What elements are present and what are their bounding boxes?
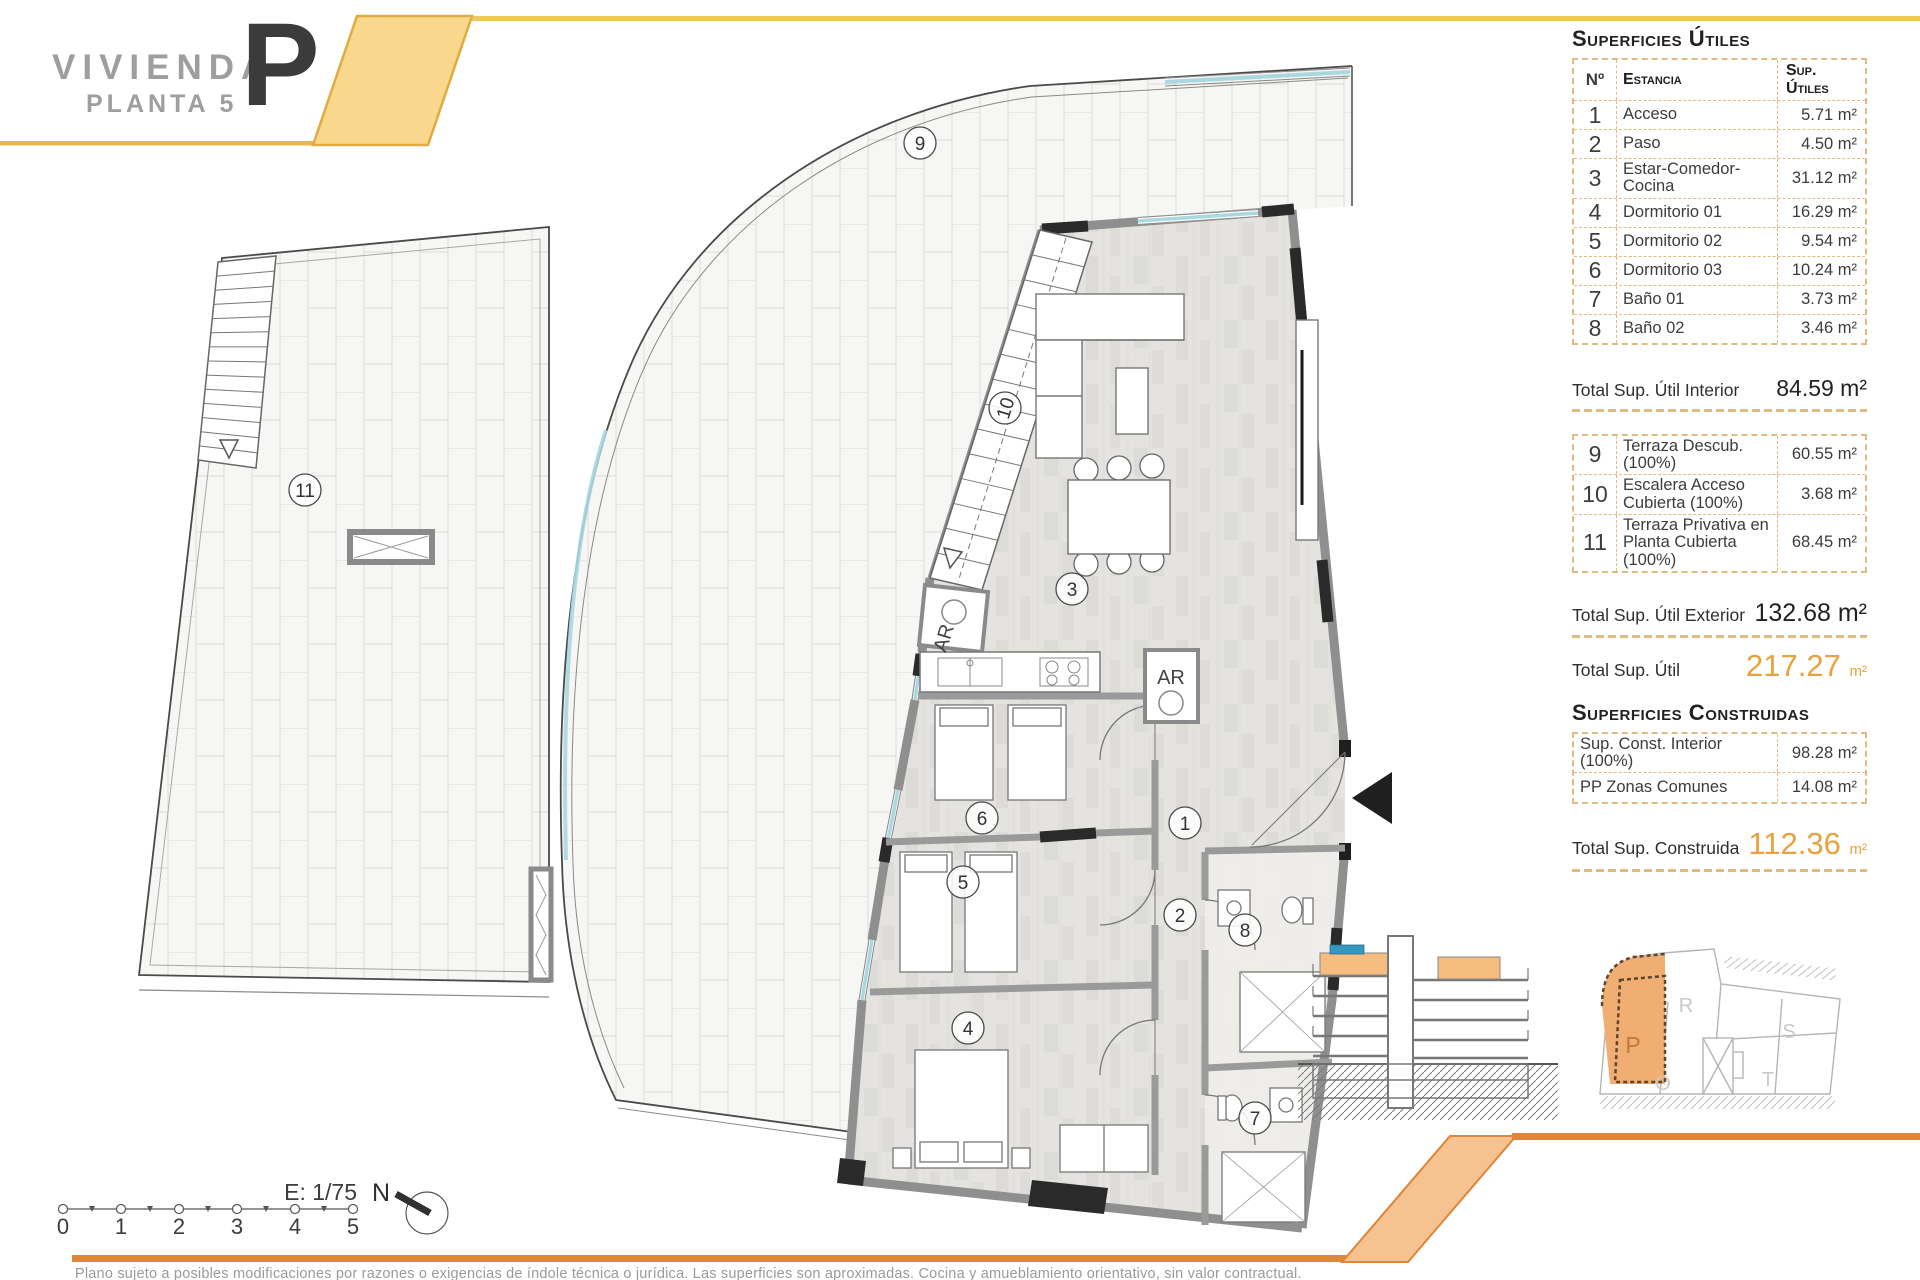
row-num: 7 [1574,286,1616,314]
bottom-parallelogram [1342,1136,1516,1262]
scale-tick-label: 3 [231,1214,243,1239]
bottom-accent-bar [72,1255,1354,1262]
row-room: Terraza Privativa en Planta Cubierta (10… [1616,515,1777,571]
room-marker: 1 [1169,807,1201,839]
room-marker: 8 [1229,914,1261,946]
title-block: VIVIENDA PLANTA 5 P [0,0,520,160]
exterior-table: 9Terraza Descub.(100%)60.55 m²10Escalera… [1572,434,1867,573]
row-room: Acceso [1616,101,1777,129]
row-num: 8 [1574,315,1616,343]
site-unit-label: S [1782,1021,1795,1043]
row-room: Dormitorio 03 [1616,257,1777,285]
row-area: 31.12 m² [1777,159,1865,198]
table-row: 4Dormitorio 0116.29 m² [1574,198,1865,227]
row-room: Dormitorio 01 [1616,199,1777,227]
site-unit-highlight [1602,954,1665,1084]
building-section-diagram [1298,936,1558,1120]
table-row: 9Terraza Descub.(100%)60.55 m² [1574,436,1865,475]
table-row: 6Dormitorio 0310.24 m² [1574,256,1865,285]
row-room: Dormitorio 02 [1616,228,1777,256]
site-ground-hatch [1600,1096,1835,1109]
room-marker: 2 [1164,899,1196,931]
row-room: Baño 01 [1616,286,1777,314]
row-area: 60.55 m² [1777,436,1865,475]
section-pool [1330,945,1364,954]
row-num: 2 [1574,130,1616,158]
svg-text:3: 3 [1067,580,1078,601]
scale-bar: 012345 E: 1/75 [57,1179,359,1239]
floorplan-page: PRSTO 012345 E: 1/75 N 1234567891011 ARA… [0,0,1920,1280]
total-construida-row: Total Sup. Construida 112.36 m² [1572,826,1867,862]
row-room: Sup. Const. Interior (100%) [1574,734,1777,773]
row-area: 5.71 m² [1777,101,1865,129]
total-util-row: Total Sup. Útil 217.27 m² [1572,648,1867,684]
total-construida-value: 112.36 m² [1748,826,1867,862]
row-num: 1 [1574,101,1616,129]
table-row: 8Baño 023.46 m² [1574,314,1865,343]
north-arrow-icon: N [372,1179,448,1234]
total-exterior-label: Total Sup. Útil Exterior [1572,605,1745,626]
dining-table-icon [1068,454,1170,576]
entrance-arrow-icon [1352,772,1392,824]
scale-tick-label: 1 [115,1214,127,1239]
svg-text:11: 11 [295,481,315,502]
row-area: 9.54 m² [1777,228,1865,256]
scale-tick-label: 5 [347,1214,359,1239]
utiles-table: Nº Estancia Sup. Útiles 1Acceso5.71 m²2P… [1572,58,1867,345]
room-marker: 3 [1056,573,1088,605]
row-room: Estar-Comedor-Cocina [1616,159,1777,198]
site-unit-label: P [1625,1032,1640,1058]
table-row: 3Estar-Comedor-Cocina31.12 m² [1574,158,1865,198]
row-area: 3.46 m² [1777,315,1865,343]
section-highlight-floor [1320,953,1392,975]
row-num: 11 [1574,515,1616,571]
scale-tick-label: 4 [289,1214,301,1239]
room-marker: 10 [989,392,1021,424]
table-row: 2Paso4.50 m² [1574,129,1865,158]
unit-letter: P [241,6,320,124]
row-room: Paso [1616,130,1777,158]
site-unit-label: R [1679,995,1693,1017]
row-area: 10.24 m² [1777,257,1865,285]
section-core [1388,936,1413,1108]
svg-text:9: 9 [915,134,926,155]
apartment-plan [561,66,1392,1228]
utiles-title: Superficies Útiles [1572,26,1867,52]
disclaimer-text: Plano sujeto a posibles modificaciones p… [75,1266,1575,1280]
total-interior-value: 84.59 m² [1776,375,1867,402]
divider [1572,635,1867,638]
areas-panel: Superficies Útiles Nº Estancia Sup. Útil… [1572,26,1867,872]
room-marker: 4 [952,1012,984,1044]
scale-tick-label: 0 [57,1214,69,1239]
total-exterior-value: 132.68 m² [1754,599,1867,628]
divider [1572,409,1867,412]
row-num: 10 [1574,475,1616,514]
table-row: PP Zonas Comunes14.08 m² [1574,772,1865,802]
row-num: 5 [1574,228,1616,256]
svg-text:2: 2 [1175,906,1186,927]
closet-label: AR [1157,667,1185,689]
total-construida-label: Total Sup. Construida [1572,838,1739,859]
total-util-value: 217.27 m² [1746,648,1867,684]
construidas-table: Sup. Const. Interior (100%)98.28 m²PP Zo… [1572,732,1867,805]
header-num: Nº [1574,60,1616,100]
total-interior-label: Total Sup. Útil Interior [1572,380,1739,401]
svg-text:5: 5 [958,873,969,894]
svg-text:6: 6 [977,809,988,830]
row-room: Terraza Descub.(100%) [1616,436,1777,475]
header-area: Sup. Útiles [1777,60,1865,100]
row-area: 16.29 m² [1777,199,1865,227]
room-marker: 9 [904,127,936,159]
row-room: PP Zonas Comunes [1574,777,1777,798]
construidas-title: Superficies Construidas [1572,700,1867,726]
room-marker: 11 [289,474,321,506]
row-area: 4.50 m² [1777,130,1865,158]
table-row: 1Acceso5.71 m² [1574,100,1865,129]
divider [1572,869,1867,872]
site-unit-label: T [1762,1069,1774,1091]
table-row: 7Baño 013.73 m² [1574,285,1865,314]
row-num: 9 [1574,436,1616,475]
row-area: 3.68 m² [1777,475,1865,514]
scale-tick-label: 2 [173,1214,185,1239]
room-marker: 6 [966,802,998,834]
kitchen-counter-icon [920,652,1100,692]
row-num: 4 [1574,199,1616,227]
scale-label: E: 1/75 [284,1179,357,1205]
floor-title: PLANTA 5 [86,90,237,119]
row-room: Escalera Acceso Cubierta (100%) [1616,475,1777,514]
top-accent-line [472,16,1920,21]
ladder-icon [531,869,551,980]
skylight-icon [350,532,432,562]
row-area: 14.08 m² [1777,773,1865,802]
svg-text:7: 7 [1250,1109,1261,1130]
bottom-right-accent-line [1512,1133,1920,1140]
svg-text:4: 4 [963,1019,974,1040]
svg-text:8: 8 [1240,921,1251,942]
total-exterior-row: Total Sup. Útil Exterior 132.68 m² [1572,599,1867,628]
row-area: 98.28 m² [1777,734,1865,773]
row-room: Baño 02 [1616,315,1777,343]
site-key-plan: PRSTO [1600,949,1840,1109]
room-marker: 7 [1239,1102,1271,1134]
svg-text:1: 1 [1180,814,1191,835]
site-unit-label: O [1655,1073,1671,1095]
header-room: Estancia [1616,60,1777,100]
row-area: 3.73 m² [1777,286,1865,314]
total-interior-row: Total Sup. Útil Interior 84.59 m² [1572,375,1867,402]
utiles-header-row: Nº Estancia Sup. Útiles [1574,60,1865,100]
table-row: 5Dormitorio 029.54 m² [1574,227,1865,256]
room-marker: 5 [947,866,979,898]
tv-unit-icon [1296,320,1318,540]
section-highlight-floor-2 [1438,957,1500,979]
north-label: N [372,1179,390,1207]
row-num: 3 [1574,159,1616,198]
row-area: 68.45 m² [1777,515,1865,571]
roof-terrace-plan [139,227,551,997]
row-num: 6 [1574,257,1616,285]
table-row: 11Terraza Privativa en Planta Cubierta (… [1574,514,1865,571]
total-util-label: Total Sup. Útil [1572,660,1680,681]
table-row: 10Escalera Acceso Cubierta (100%)3.68 m² [1574,474,1865,514]
table-row: Sup. Const. Interior (100%)98.28 m² [1574,734,1865,773]
